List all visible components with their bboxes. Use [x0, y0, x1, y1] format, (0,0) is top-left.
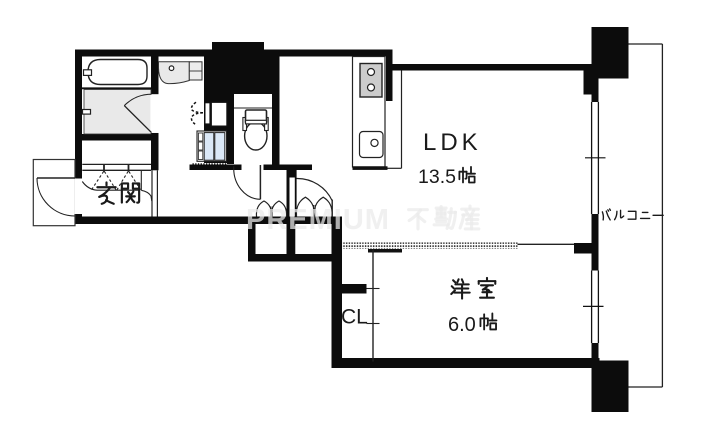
svg-text:13.5: 13.5 — [418, 166, 456, 188]
svg-text:PREMIUM: PREMIUM — [246, 204, 390, 236]
svg-text:LDK: LDK — [423, 129, 482, 156]
svg-text:6.0: 6.0 — [448, 314, 476, 336]
svg-text:CL: CL — [341, 306, 368, 329]
